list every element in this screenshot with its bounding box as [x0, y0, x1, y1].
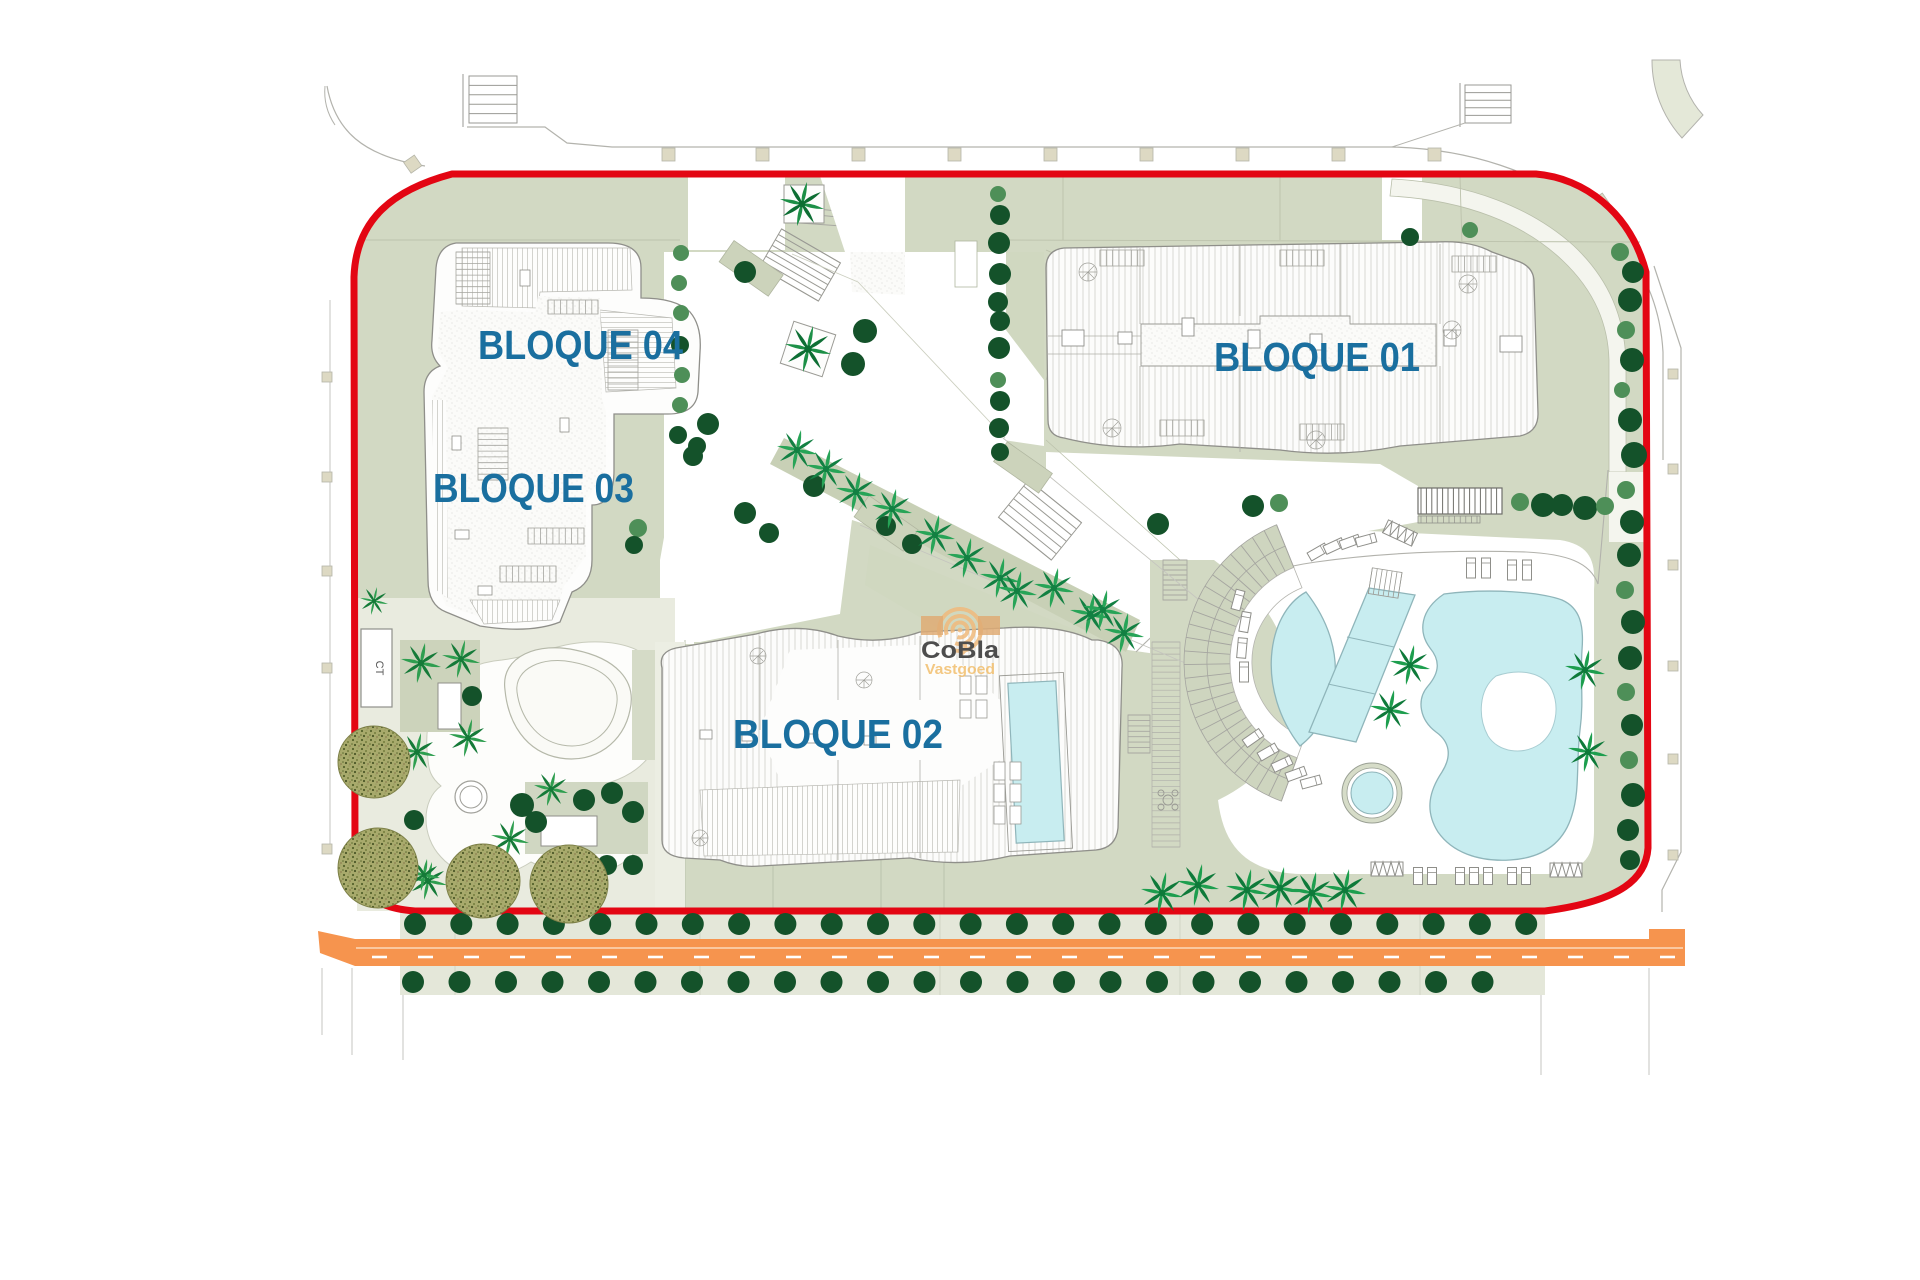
svg-text:BLOQUE 03: BLOQUE 03 — [433, 465, 634, 511]
svg-text:CT: CT — [373, 661, 385, 676]
svg-text:BLOQUE 01: BLOQUE 01 — [1214, 334, 1420, 380]
svg-text:Vastgoed: Vastgoed — [925, 661, 995, 678]
svg-text:CoBla: CoBla — [921, 637, 1000, 664]
svg-text:BLOQUE 02: BLOQUE 02 — [733, 711, 943, 757]
svg-text:BLOQUE 04: BLOQUE 04 — [478, 322, 683, 368]
